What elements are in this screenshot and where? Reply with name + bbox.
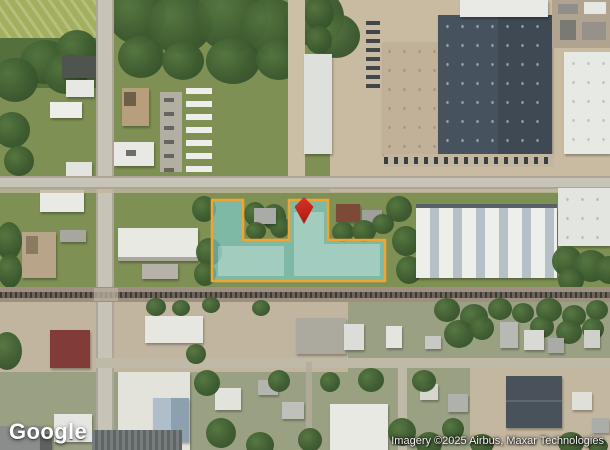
red-roof-building	[50, 330, 90, 368]
attribution-text: Imagery ©2025 Airbus, Maxar Technologies	[391, 435, 604, 447]
driveway	[288, 0, 305, 176]
parking-strip	[160, 92, 182, 172]
location-pin-icon[interactable]	[295, 197, 314, 224]
road-vertical	[96, 0, 114, 450]
street-residential	[96, 358, 610, 368]
storage-rows	[186, 86, 212, 172]
road-horizontal	[0, 176, 610, 189]
map-canvas[interactable]: Google Imagery ©2025 Airbus, Maxar Techn…	[0, 0, 610, 450]
ribbed-roof	[92, 430, 182, 450]
google-logo[interactable]: Google	[9, 419, 87, 445]
warehouse-striped	[416, 208, 557, 278]
parked-trucks	[366, 20, 380, 88]
dark-roof-building	[506, 376, 562, 428]
car-row	[384, 154, 554, 167]
